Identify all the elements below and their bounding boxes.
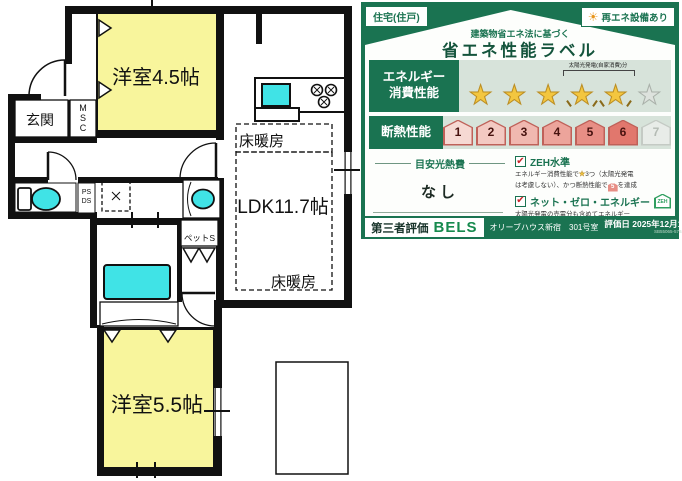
grade-house-1: 1 — [443, 120, 473, 146]
zeh-note-1: エネルギー消費性能で★3つ（太陽光発電 は考慮しない）、かつ断熱性能で5を達成 — [515, 170, 671, 192]
zeh-house-icon: ZEH — [654, 194, 671, 209]
energy-row-label-1: エネルギー — [383, 70, 446, 86]
label-title: 省エネ性能ラベル — [365, 37, 675, 61]
evaluator-label: 第三者評価 — [371, 220, 429, 236]
pet-space-door — [183, 248, 215, 262]
energy-label-panel: 住宅(住戸) ☀ 再エネ設備あり 建築物省エネ法に基づく 省エネ性能ラベル エネ… — [361, 2, 679, 239]
zeh-column: ✔ ZEH水準 エネルギー消費性能で★3つ（太陽光発電 は考慮しない）、かつ断熱… — [511, 153, 671, 213]
evaluator-name: BELS — [434, 219, 478, 236]
evaluation-date: 評価日 2025年12月10日 — [604, 219, 682, 229]
floor-heating-label-1: 床暖房 — [239, 133, 284, 150]
inline-house-icon: 5 — [608, 183, 618, 192]
stars-zone: 太陽光発電(自家消費)分 ★ ★ ★ ★ ★ ★ — [459, 60, 671, 112]
energy-consumption-row: エネルギー 消費性能 太陽光発電(自家消費)分 ★ ★ ★ ★ ★ ★ — [369, 60, 671, 112]
star-empty-6: ★ — [637, 80, 661, 110]
floor-heating-label-2: 床暖房 — [271, 274, 316, 291]
bels-box: 第三者評価 BELS — [365, 218, 484, 237]
ldk-label: LDK11.7帖 — [237, 196, 329, 218]
ds-label: DS — [82, 198, 92, 205]
insulation-row-header: 断熱性能 — [369, 116, 443, 149]
msc-letter-m: M — [79, 103, 87, 113]
ps-label: PS — [82, 189, 92, 196]
floor-plan: 玄関 M S C PS DS ペットS — [0, 0, 360, 481]
renewable-text: 再エネ設備あり — [601, 10, 668, 24]
reference-number: SB55065-5784-4971 — [604, 229, 682, 234]
cost-heading: 目安光熱費 — [415, 156, 465, 171]
room2-door — [182, 293, 215, 326]
bath-closet-strip — [100, 302, 178, 326]
insulation-zone: 1 2 3 4 5 6 7 — [443, 116, 671, 149]
ldk-door — [180, 143, 216, 179]
room1-label: 洋室4.5帖 — [112, 66, 200, 89]
washer-pan — [102, 182, 130, 211]
zeh-title-2: ネット・ゼロ・エネルギー — [530, 194, 650, 209]
listing-image: 玄関 M S C PS DS ペットS — [0, 0, 682, 481]
zeh-checkbox-1: ✔ — [515, 156, 526, 167]
grade-house-4: 4 — [542, 120, 572, 146]
zeh-title-1: ZEH水準 — [530, 154, 570, 169]
msc-letter-s: S — [80, 113, 86, 123]
housing-type-text: 住宅(住戸) — [373, 9, 420, 24]
energy-row-header: エネルギー 消費性能 — [369, 60, 459, 112]
energy-row-label-2: 消費性能 — [389, 86, 439, 102]
insulation-row-label: 断熱性能 — [381, 125, 431, 141]
insulation-row: 断熱性能 1 2 3 4 5 6 7 — [369, 116, 671, 149]
zeh-checkbox-2: ✔ — [515, 196, 526, 207]
pet-space-label: ペットS — [184, 233, 216, 243]
grade-house-6: 6 — [608, 120, 638, 146]
star-filled-2: ★ — [502, 80, 526, 110]
cost-value: なし — [369, 181, 511, 202]
sun-icon: ☀ — [588, 12, 599, 22]
grade-house-3: 3 — [509, 120, 539, 146]
washbasin — [183, 180, 220, 218]
grade-house-5: 5 — [575, 120, 605, 146]
toilet-bowl — [32, 188, 60, 210]
star-filled-3: ★ — [536, 80, 560, 110]
kitchen-sink — [262, 84, 290, 106]
grade-house-2: 2 — [476, 120, 506, 146]
details-section: 目安光熱費 なし ✔ ZEH水準 エネルギー消費性能で★3つ（太陽光発電 は考慮… — [369, 153, 671, 213]
hall-door — [48, 152, 76, 180]
housing-type-badge: 住宅(住戸) — [365, 6, 428, 27]
entry-door — [29, 60, 65, 96]
cost-column: 目安光熱費 なし — [369, 153, 511, 213]
label-house-background: 建築物省エネ法に基づく 省エネ性能ラベル エネルギー 消費性能 太陽光発電(自家… — [365, 10, 675, 216]
bathtub — [104, 265, 170, 299]
genkan-label: 玄関 — [26, 112, 54, 128]
msc-letter-c: C — [80, 123, 87, 133]
room2-label: 洋室5.5帖 — [111, 394, 203, 417]
star-filled-1: ★ — [469, 80, 493, 110]
star-solar-4: ★ — [570, 80, 594, 110]
cost-divider-right — [469, 163, 505, 164]
solar-bracket — [563, 70, 635, 76]
toilet-tank — [18, 188, 31, 210]
property-name: オリーブハウス新宿 301号室 — [490, 222, 599, 233]
label-footer: 第三者評価 BELS オリーブハウス新宿 301号室 評価日 2025年12月1… — [365, 217, 675, 237]
floor-heating-area-2 — [236, 152, 332, 290]
renewable-badge: ☀ 再エネ設備あり — [581, 7, 675, 27]
balcony — [276, 362, 348, 474]
cost-underline — [373, 212, 503, 213]
grade-house-7: 7 — [641, 120, 671, 146]
window-ldk-east — [344, 152, 352, 194]
star-solar-5: ★ — [603, 80, 627, 110]
kitchen-counter — [255, 78, 345, 121]
solar-note: 太陽光発電(自家消費)分 — [545, 61, 651, 69]
cost-divider-left — [375, 163, 411, 164]
